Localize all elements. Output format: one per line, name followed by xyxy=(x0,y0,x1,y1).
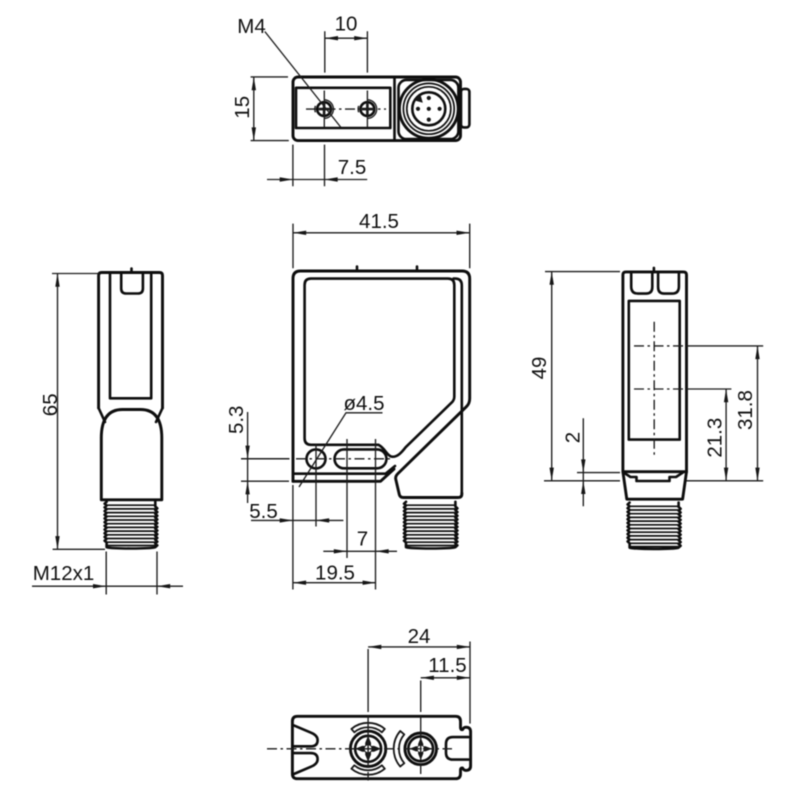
svg-text:7.5: 7.5 xyxy=(338,156,367,179)
svg-text:49: 49 xyxy=(528,357,551,380)
svg-text:ø4.5: ø4.5 xyxy=(343,392,384,415)
svg-text:5.5: 5.5 xyxy=(249,500,278,523)
svg-text:M4: M4 xyxy=(237,15,265,38)
svg-text:65: 65 xyxy=(39,393,62,416)
svg-text:M12x1: M12x1 xyxy=(33,562,95,585)
svg-text:11.5: 11.5 xyxy=(428,654,466,677)
svg-text:10: 10 xyxy=(335,13,358,36)
svg-text:21.3: 21.3 xyxy=(704,418,727,458)
svg-text:15: 15 xyxy=(231,96,254,119)
svg-text:7: 7 xyxy=(357,528,368,551)
svg-text:5.3: 5.3 xyxy=(225,406,248,435)
svg-text:31.8: 31.8 xyxy=(734,390,757,430)
svg-text:41.5: 41.5 xyxy=(359,210,399,233)
svg-text:19.5: 19.5 xyxy=(315,562,355,585)
svg-text:24: 24 xyxy=(408,625,431,648)
svg-text:2: 2 xyxy=(561,432,584,443)
